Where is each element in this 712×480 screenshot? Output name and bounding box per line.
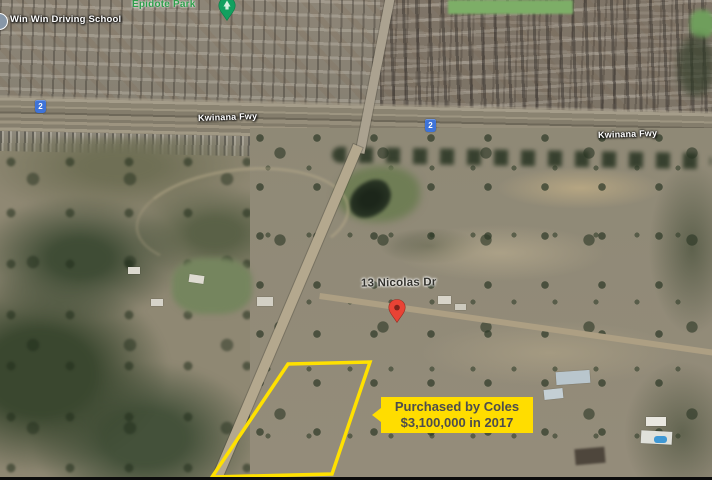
route-2-shield-west: 2 (35, 100, 46, 113)
shed-roof (151, 299, 163, 306)
house-roof (646, 417, 666, 426)
park-label[interactable]: Epidote Park (132, 0, 196, 10)
route-2-shield-east: 2 (425, 119, 436, 132)
dark-roof (574, 447, 605, 466)
callout-line-2: $3,100,000 in 2017 (401, 415, 514, 431)
callout-line-1: Purchased by Coles (395, 399, 519, 415)
street-address-label: 13 Nicolas Dr (361, 276, 437, 289)
driving-school-label[interactable]: Win Win Driving School (10, 14, 121, 25)
grass-patch (690, 10, 712, 38)
callout-purchase-info: Purchased by Coles $3,100,000 in 2017 (381, 397, 533, 433)
grass-strip (448, 0, 573, 14)
shed-roof (455, 304, 466, 310)
freeway-label-east: Kwinana Fwy (598, 128, 658, 140)
shed-roof (438, 296, 451, 304)
tree-patch (678, 36, 712, 96)
shed-roof (128, 267, 140, 274)
shed-roof (257, 297, 273, 306)
suburb-area-northeast (380, 0, 712, 122)
satellite-map[interactable]: Win Win Driving School Epidote Park 2 2 … (0, 0, 712, 480)
swimming-pool (654, 436, 667, 443)
house-roof (544, 388, 564, 400)
freeway-label-west: Kwinana Fwy (198, 111, 258, 123)
house-roof (556, 370, 591, 385)
